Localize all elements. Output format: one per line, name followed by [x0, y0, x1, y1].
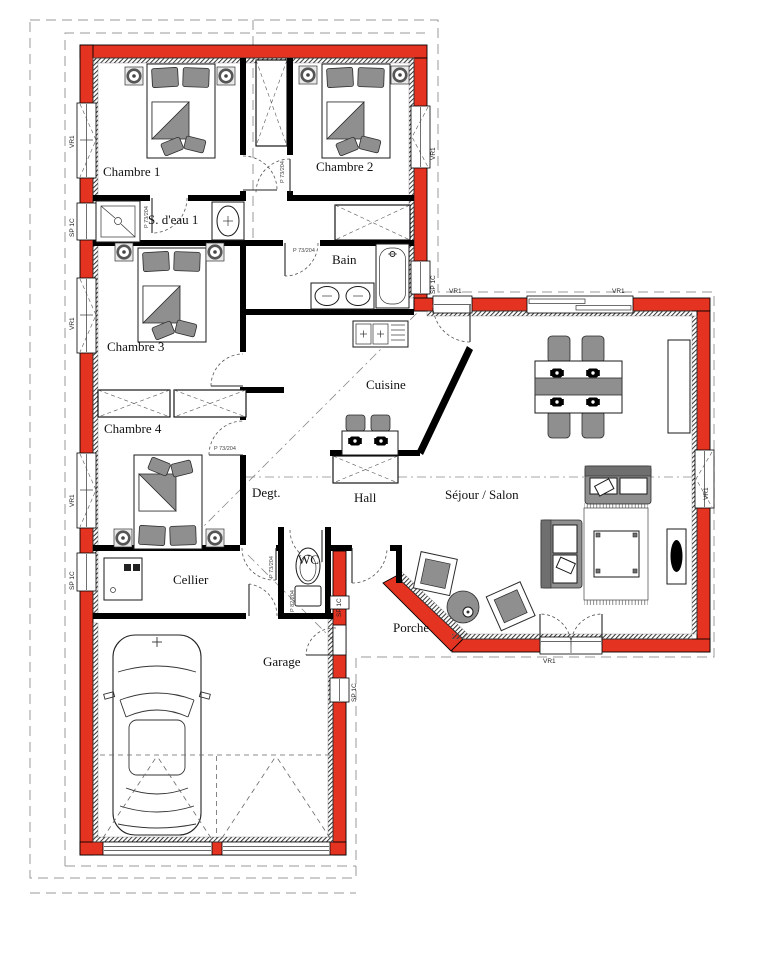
round-side-table	[447, 591, 479, 623]
door-label: P 73/204	[269, 556, 275, 578]
door-label: P 73/204	[214, 446, 236, 452]
door-label: P 73/204	[280, 161, 286, 183]
door-label: P 82/204	[290, 590, 296, 612]
armchair-2	[486, 582, 535, 631]
floor-plan-svg: Chambre 1 Chambre 2 S. d'eau 1 Bain Cham…	[0, 0, 779, 960]
door-chambre3	[211, 354, 243, 386]
bed-chambre4	[134, 455, 202, 549]
door-chambre1	[243, 156, 277, 190]
window-label: VR1	[543, 658, 556, 665]
window-label: VR1	[69, 494, 76, 507]
door-entry	[352, 548, 387, 583]
room-label-hall: Hall	[354, 490, 377, 505]
window-sp1c-garage-lower	[330, 678, 349, 702]
kitchen-sink	[353, 321, 408, 347]
sofa-left	[541, 520, 582, 588]
wall-cabinet	[668, 340, 690, 433]
door-label: P 73/204	[293, 248, 315, 254]
room-label-bain: Bain	[332, 252, 357, 267]
window-label: VR1	[69, 317, 76, 330]
window-label: SP 1C	[69, 571, 76, 590]
room-label-garage: Garage	[263, 654, 301, 669]
room-label-degt: Degt.	[252, 485, 281, 500]
window-vr1-chambre2	[411, 106, 430, 168]
coffee-table	[594, 531, 639, 577]
window-sp1c-sdeau	[77, 203, 96, 240]
room-label-cuisine: Cuisine	[366, 377, 406, 392]
door-garage-east	[306, 625, 346, 655]
window-vr1-chambre3	[77, 278, 96, 353]
door-garage-cellier	[249, 584, 277, 616]
spotlight-icon	[115, 243, 133, 261]
window-slider-vr1-sejour	[527, 296, 633, 313]
room-label-chambre2: Chambre 2	[316, 159, 373, 174]
window-label: VR1	[612, 288, 625, 295]
room-label-chambre4: Chambre 4	[104, 421, 162, 436]
closet-lobby	[335, 205, 410, 240]
dining-set	[535, 336, 622, 438]
bed-chambre3	[138, 248, 206, 342]
spotlight-icon	[114, 529, 132, 547]
spotlight-icon	[299, 66, 317, 84]
closet-chambre4-a	[98, 390, 170, 417]
bathtub	[376, 244, 409, 308]
window-label: VR1	[430, 147, 437, 160]
car	[104, 635, 211, 835]
spotlight-icon	[125, 67, 143, 85]
kitchen-diagonal-wall	[417, 346, 473, 455]
window-sp1c-cellier	[77, 553, 96, 591]
spotlight-icon	[391, 66, 409, 84]
window-label: SP 1C	[336, 598, 343, 617]
sink-sdeau	[212, 202, 244, 240]
room-label-sdeau1: S. d'eau 1	[148, 212, 198, 227]
window-label: SP 1C	[69, 218, 76, 237]
bed-chambre1	[147, 64, 215, 158]
sofa-large	[585, 466, 651, 504]
closet-chambre4-b	[174, 390, 246, 417]
kitchen-bar	[342, 415, 398, 455]
window-label: VR1	[69, 135, 76, 148]
window-vr1-chambre4	[77, 453, 96, 528]
closet-hall	[333, 456, 398, 483]
window-label: VR1	[449, 288, 462, 295]
bed-chambre2	[322, 64, 390, 158]
room-label-cellier: Cellier	[173, 572, 209, 587]
room-label-wc: WC	[298, 552, 319, 567]
window-label: SP 1C	[430, 275, 437, 294]
door-label: P 73/204	[144, 206, 150, 228]
window-label: VR1	[703, 487, 710, 500]
shower	[96, 201, 140, 242]
window-door-vr1-cuisine	[433, 296, 472, 342]
spotlight-icon	[206, 529, 224, 547]
spotlight-icon	[217, 67, 235, 85]
spotlight-icon	[206, 243, 224, 261]
closet-chambre1-2	[256, 60, 287, 146]
tv-console	[667, 529, 686, 584]
window-label: SP 1C	[351, 683, 358, 702]
room-label-chambre3: Chambre 3	[107, 339, 164, 354]
room-label-porche: Porche	[393, 620, 429, 635]
double-sink-bain	[311, 283, 374, 309]
floor-plan-page: Chambre 1 Chambre 2 S. d'eau 1 Bain Cham…	[0, 0, 779, 960]
armchair-1	[413, 552, 457, 596]
room-label-sejour: Séjour / Salon	[445, 487, 519, 502]
window-vr1-chambre1	[77, 103, 96, 178]
window-sp1c-bain	[411, 261, 430, 294]
room-label-chambre1: Chambre 1	[103, 164, 160, 179]
cellier-appliance	[104, 558, 142, 600]
